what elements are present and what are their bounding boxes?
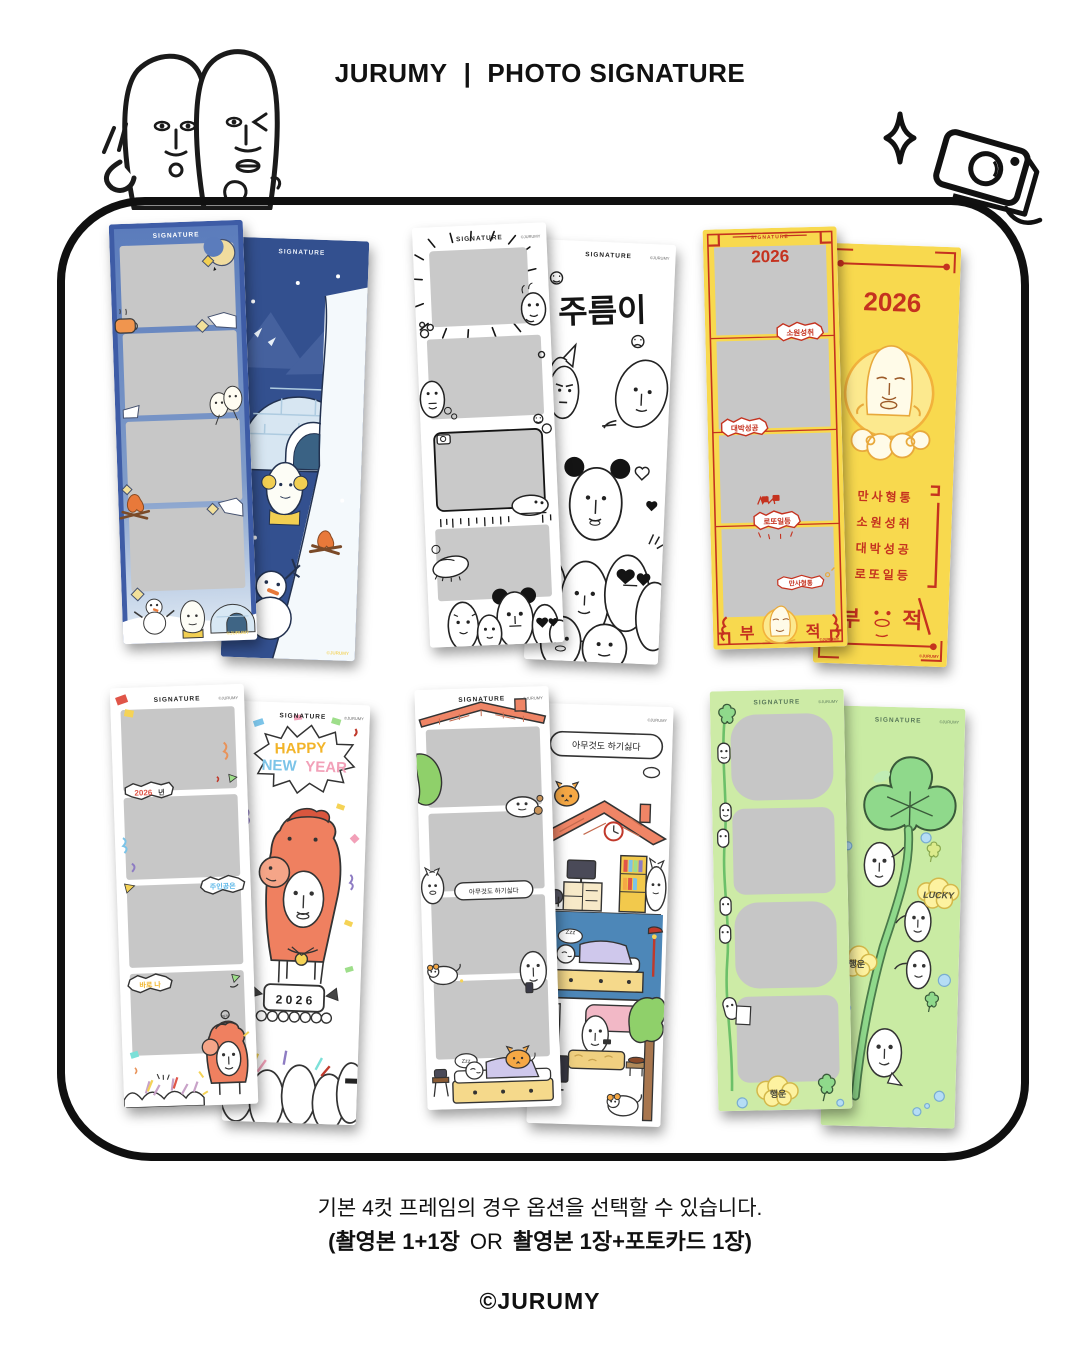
svg-text:만사형통: 만사형통 <box>857 488 914 505</box>
footer-copyright: ©JURUMY <box>0 1288 1080 1315</box>
footer-option-detail: (촬영본 1+1장OR촬영본 1장+포토카드 1장) <box>0 1224 1080 1256</box>
strip-copyright: ©JURUMY <box>344 716 364 722</box>
jureumi-title: 주름이 <box>558 292 647 330</box>
roof-cat <box>554 782 579 807</box>
jeok-char: 적 <box>902 608 923 634</box>
strip-title: SIGNATURE <box>875 716 922 724</box>
frame-set-jureumi: 주름이 <box>421 225 673 669</box>
sparkle-icon <box>886 114 914 162</box>
photo-placeholder <box>427 335 544 420</box>
speech-bubble: 아무것도 하기싫다 <box>455 881 533 900</box>
svg-text:소원성취: 소원성취 <box>856 514 913 531</box>
svg-text:2026: 2026 <box>134 788 153 798</box>
jeok-char: 적 <box>805 623 820 641</box>
frame-set-talisman: 2026 만사형통 소원성취 대박성공 로또일등 <box>708 228 960 672</box>
frame-set-lucky: LUCKY 행운 SIGNATU <box>714 690 966 1134</box>
talisman-front-strip: SIGNATURE 2026 소원성취 대박성공 로또일등 <box>703 226 848 649</box>
svg-text:Zzz: Zzz <box>565 930 575 936</box>
camera-doodle-icon <box>437 435 450 445</box>
bubble-wish: 소원성취 <box>777 322 823 341</box>
svg-text:행운: 행운 <box>848 958 865 969</box>
strip-title: SIGNATURE <box>751 234 789 241</box>
strip-copyright: ©JURUMY <box>227 629 250 636</box>
frame-set-house: 아무것도 하기싫다 <box>421 688 673 1132</box>
svg-text:로또일등: 로또일등 <box>763 516 791 527</box>
subtitle-text: PHOTO SIGNATURE <box>487 58 745 89</box>
svg-text:년: 년 <box>158 788 165 797</box>
frame-set-winter: SIGNATURE ©JURUMY <box>116 222 368 666</box>
strip-title: SIGNATURE <box>458 695 505 703</box>
strip-copyright: ©JURUMY <box>523 695 543 701</box>
year-text: YEAR <box>305 758 347 776</box>
option-a: 촬영본 1+1장 <box>335 1229 459 1254</box>
camera-icon <box>856 100 1046 230</box>
strip-copyright: ©JURUMY <box>818 699 838 704</box>
bu-char: 부 <box>740 625 755 643</box>
house-front-strip: 아무것도 하기싫다 Zzz <box>414 686 561 1110</box>
option-b: 촬영본 1장+포토카드 1장 <box>513 1229 745 1254</box>
svg-text:아무것도 하기싫다: 아무것도 하기싫다 <box>572 740 642 752</box>
strip-copyright: ©JURUMY <box>650 255 670 261</box>
svg-text:2 0 2 6: 2 0 2 6 <box>275 992 312 1007</box>
bubble-success: 대박성공 <box>721 417 767 436</box>
winter-front-strip: SIGNATURE ©JURUMY <box>109 220 258 644</box>
newyear-front-strip: 2026 년 주인공은 바로 나 따각 <box>110 684 259 1108</box>
jureumi-front-strip: SIGNATURE ©JURUMY <box>412 222 564 647</box>
title-divider: | <box>464 58 472 89</box>
lucky-front-strip: 행운 SIGNATURE ©JURUMY <box>710 689 853 1112</box>
talisman-year: 2026 <box>863 286 922 318</box>
svg-text:따각: 따각 <box>222 1013 229 1018</box>
strip-copyright: ©JURUMY <box>521 234 541 240</box>
brand-text: JURUMY <box>335 58 448 89</box>
strip-title: SIGNATURE <box>753 699 800 707</box>
strip-copyright: ©JURUMY <box>218 695 238 701</box>
strip-copyright: ©JURUMY <box>919 653 939 659</box>
or-text: OR <box>460 1229 513 1254</box>
svg-text:로또일등: 로또일등 <box>854 567 911 583</box>
svg-text:대박성공: 대박성공 <box>855 540 912 557</box>
svg-text:소원성취: 소원성취 <box>786 327 814 338</box>
footer-option-note: 기본 4컷 프레임의 경우 옵션을 선택할 수 있습니다. <box>0 1192 1080 1222</box>
svg-text:LUCKY: LUCKY <box>923 890 955 901</box>
strip-copyright: ©JURUMY <box>326 649 349 656</box>
new-text: NEW <box>261 757 297 775</box>
frame-set-newyear: HAPPY NEW YEAR <box>117 686 369 1130</box>
winter-character <box>180 600 205 638</box>
talisman-year: 2026 <box>751 247 789 267</box>
svg-text:대박성공: 대박성공 <box>731 422 759 433</box>
strip-copyright: ©JURUMY <box>819 636 839 642</box>
wall-clock <box>604 822 623 841</box>
jurumy-characters-illustration <box>76 30 308 210</box>
photo-placeholder <box>429 247 530 327</box>
svg-text:행운: 행운 <box>770 1088 787 1099</box>
paren-close: ) <box>745 1229 752 1254</box>
strip-copyright: ©JURUMY <box>939 719 959 725</box>
strip-copyright: ©JURUMY <box>647 717 667 723</box>
happy-text: HAPPY <box>275 740 327 758</box>
